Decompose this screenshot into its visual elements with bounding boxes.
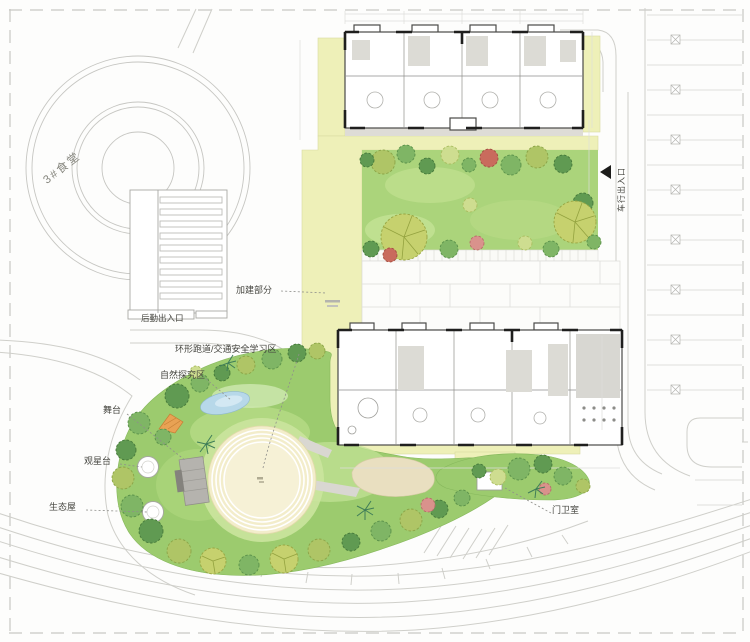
label-logistics-entrance: 后勤出入口 [141,314,184,323]
site-plan-drawing [0,0,750,642]
site-plan-canvas: 3#食堂 后勤出入口 加建部分 环形跑道/交通安全学习区 自然探究区 舞台 观星… [0,0,750,642]
parking-stalls [647,15,742,505]
ring-track [208,426,316,534]
street-tree-grates [671,35,680,394]
label-nature-explore: 自然探究区 [160,371,205,380]
label-stage: 舞台 [103,406,121,415]
label-eco-house: 生态屋 [49,503,76,512]
classroom-building-2 [338,323,622,445]
label-addition-part: 加建部分 [236,286,272,295]
service-building [128,190,227,319]
stargazing-platform [138,457,159,478]
label-stargazing: 观星台 [84,457,111,466]
classroom-building-1 [345,25,583,130]
label-guard-room: 门卫室 [552,506,579,515]
label-ring-track: 环形跑道/交通安全学习区 [175,345,277,354]
label-vehicle-entrance: 车行出入口 [618,167,626,212]
entrance-arrow-icon [600,165,611,179]
